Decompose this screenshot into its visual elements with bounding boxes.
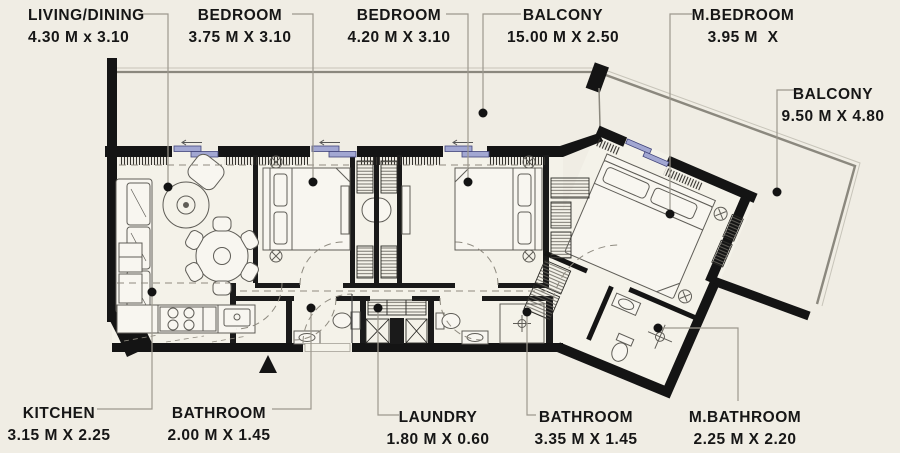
room-name: BALCONY [781,84,884,106]
bedroom1-furniture [263,156,350,262]
label-balcony-right: BALCONY 9.50 M X 4.80 [781,84,884,128]
label-kitchen: KITCHEN 3.15 M X 2.25 [7,403,110,447]
sink-icon [224,309,250,326]
sink-icon [462,331,488,344]
room-name: LAUNDRY [386,407,489,429]
floor-plan-drawing [0,0,900,453]
room-name: BALCONY [507,5,619,27]
room-name: M.BEDROOM [692,5,795,27]
label-living-dining: LIVING/DINING 4.30 M x 3.10 [28,5,145,49]
room-dimensions: 9.50 M X 4.80 [781,106,884,128]
floor-plan-page: LIVING/DINING 4.30 M x 3.10 BEDROOM 3.75… [0,0,900,453]
bed-icon [263,168,350,250]
dresser-icon [402,186,410,234]
room-name: M.BATHROOM [689,407,801,429]
toilet-icon [333,312,360,329]
room-name: KITCHEN [7,403,110,425]
label-master-bedroom: M.BEDROOM 3.95 M X [692,5,795,49]
label-bedroom-2: BEDROOM 4.20 M X 3.10 [347,5,450,49]
room-dimensions: 4.30 M x 3.10 [28,27,145,49]
label-master-bathroom: M.BATHROOM 2.25 M X 2.20 [689,407,801,451]
label-bathroom-1: BATHROOM 2.00 M X 1.45 [167,403,270,447]
room-dimensions: 4.20 M X 3.10 [347,27,450,49]
room-name: BEDROOM [188,5,291,27]
label-bathroom-2: BATHROOM 3.35 M X 1.45 [534,407,637,451]
north-arrow-icon [259,355,277,373]
room-dimensions: 3.15 M X 2.25 [7,425,110,447]
room-dimensions: 1.80 M X 0.60 [386,429,489,451]
room-dimensions: 2.00 M X 1.45 [167,425,270,447]
dresser-icon [341,186,349,234]
label-balcony-top: BALCONY 15.00 M X 2.50 [507,5,619,49]
room-dimensions: 3.95 M X [692,27,795,49]
room-dimensions: 2.25 M X 2.20 [689,429,801,451]
label-bedroom-1: BEDROOM 3.75 M X 3.10 [188,5,291,49]
room-name: LIVING/DINING [28,5,145,27]
toilet-icon [436,313,460,329]
entry-threshold [305,344,350,352]
room-dimensions: 3.75 M X 3.10 [188,27,291,49]
room-dimensions: 15.00 M X 2.50 [507,27,619,49]
room-name: BATHROOM [167,403,270,425]
room-name: BEDROOM [347,5,450,27]
room-name: BATHROOM [534,407,637,429]
room-dimensions: 3.35 M X 1.45 [534,429,637,451]
label-laundry: LAUNDRY 1.80 M X 0.60 [386,407,489,451]
